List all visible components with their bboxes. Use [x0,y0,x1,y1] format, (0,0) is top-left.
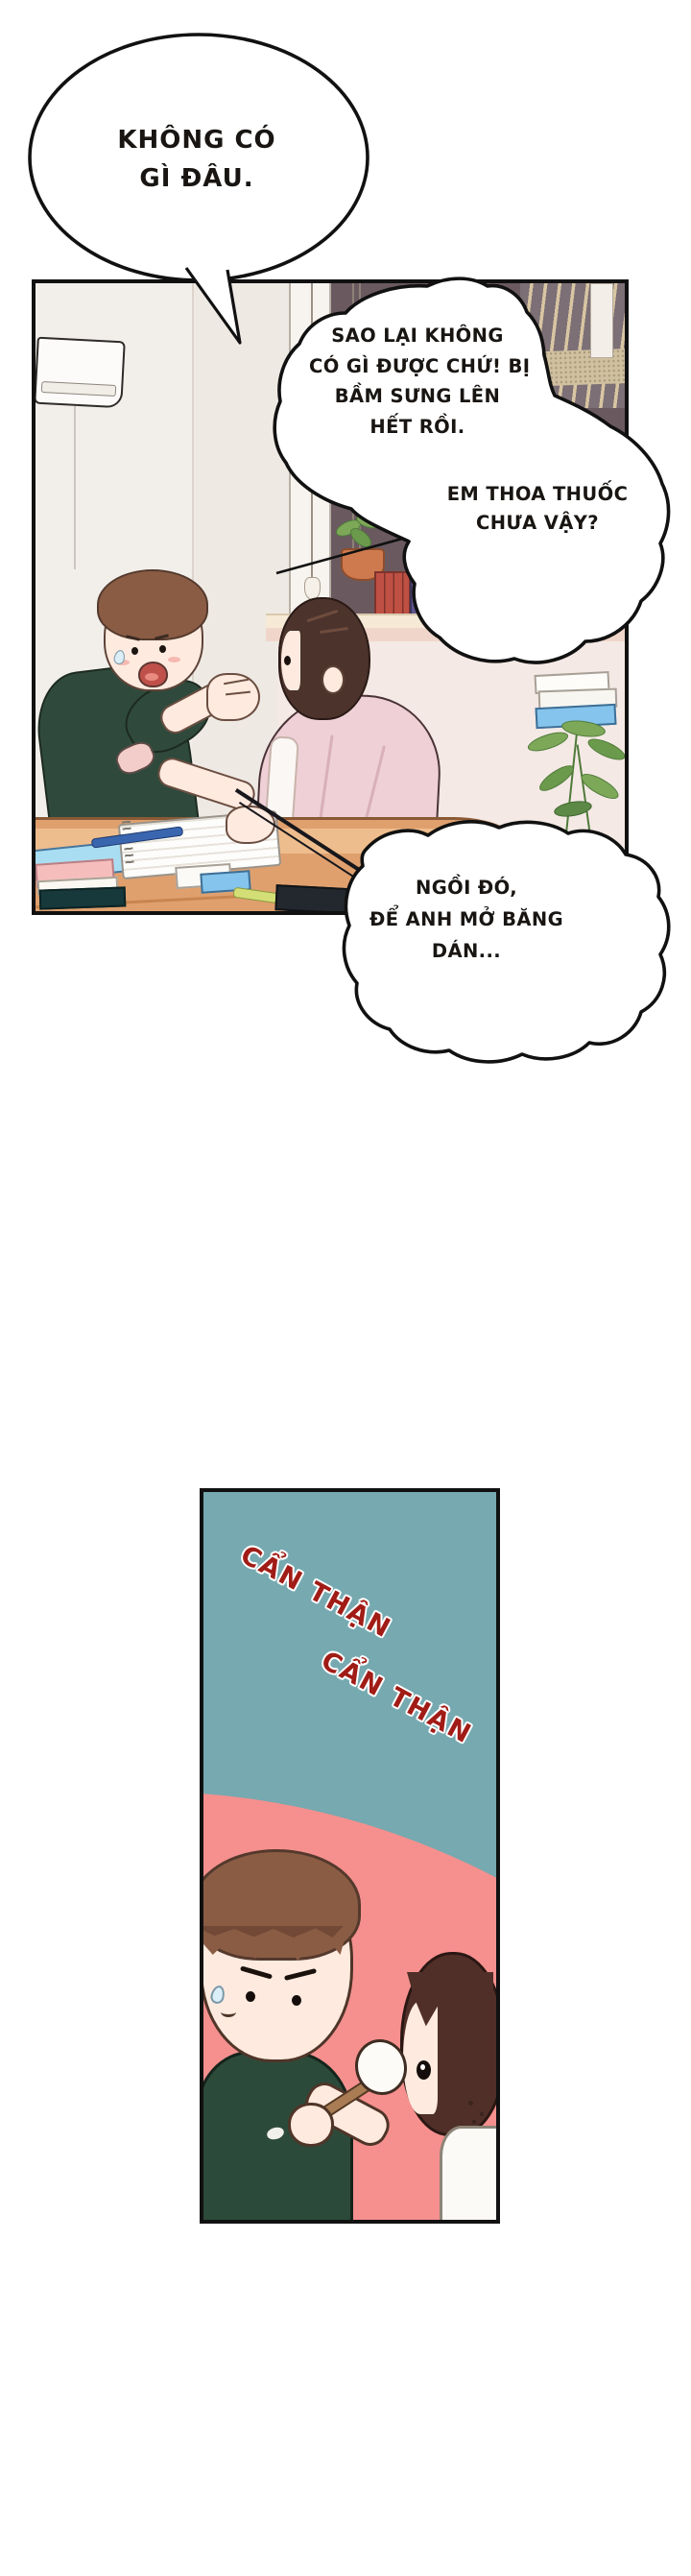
eye-dot [159,645,166,653]
bubble1-text: KHÔNG CÓ GÌ ĐÂU. [58,121,336,198]
bruise-speck [468,2101,473,2106]
bubble2-line: HẾT RỒI. [309,412,526,443]
cotton-ball-icon [355,2039,407,2095]
chibi-right-eye-icon [417,2060,431,2080]
bubble2-text-block1: SAO LẠI KHÔNG CÓ GÌ ĐƯỢC CHỨ! BỊ BẦM SƯN… [309,321,526,442]
book-teal-dark [39,886,127,909]
chibi-right-shirt [440,2126,500,2224]
chibi-smile [221,2007,236,2017]
chibi-left-fist [288,2103,334,2147]
bubble2-text-block2: EM THOA THUỐC CHƯA VẬY? [443,480,631,538]
bubble2-line: CHƯA VẬY? [443,509,631,538]
bruise-speck [472,2120,476,2124]
ac-pipe [74,406,76,569]
window-mullion [590,283,613,358]
bubble2-line: CÓ GÌ ĐƯỢC CHỨ! BỊ [309,351,526,382]
bubble1-line: GÌ ĐÂU. [58,159,336,198]
bubble2-line: SAO LẠI KHÔNG [309,321,526,351]
chibi-eye-dot [246,1991,255,2002]
chibi-right-eye-glint [420,2064,425,2070]
sfx-can-than-2: CẨN THẬN [316,1646,476,1750]
bubble3-line: NGỒI ĐÓ, [363,872,570,903]
bubble3-line: DÁN... [363,935,570,967]
bubble2-line: EM THOA THUỐC [443,480,631,509]
character-right-ear [322,665,345,694]
bubble3-text: NGỒI ĐÓ, ĐỂ ANH MỞ BĂNG DÁN... [363,872,570,967]
character-left-hair [97,569,208,640]
bubble2-line: BẦM SƯNG LÊN [309,381,526,412]
sfx-can-than-1: CẨN THẬN [235,1540,395,1645]
chibi-right-face [403,2001,438,2114]
bubble1-line: KHÔNG CÓ [58,121,336,159]
bubble3-line: ĐỂ ANH MỞ BĂNG [363,903,570,935]
air-conditioner [34,337,126,409]
chibi-eye-dot [292,1995,301,2006]
character-right-eye-icon [284,656,291,665]
bruise-speck [480,2112,484,2116]
blush-mark [168,657,180,662]
eye-dot [131,647,138,655]
comic-page: { "comic": { "type": "webtoon-page", "bu… [0,0,691,2576]
panel-chibi-scene: CẨN THẬN CẨN THẬN [200,1488,500,2224]
tongue [145,673,158,681]
